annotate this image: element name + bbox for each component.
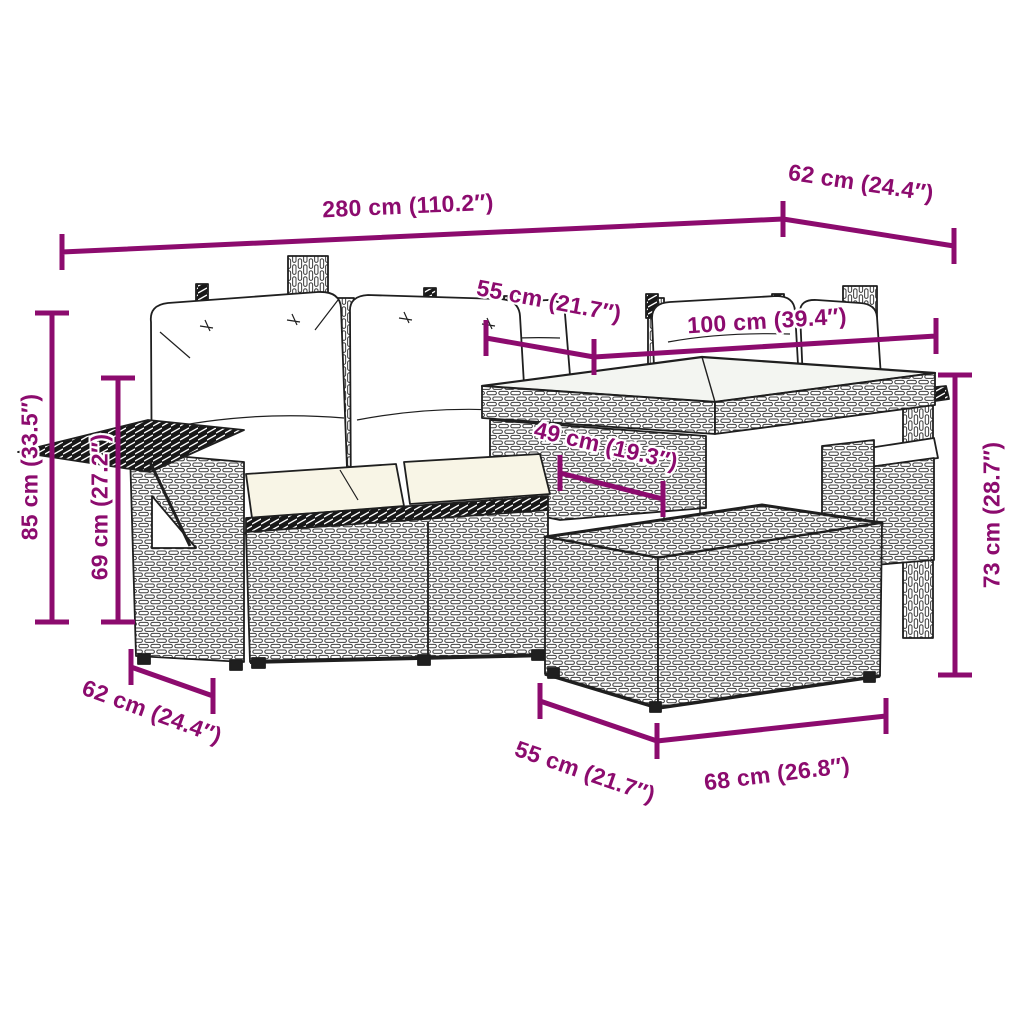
- dimension-label-right-table-height: 73 cm (28.7″): [979, 442, 1006, 589]
- dimension-label-left-arm-height: 69 cm (27.2″): [87, 434, 114, 581]
- ottoman: [545, 505, 882, 712]
- furniture-illustration: [0, 0, 1024, 1024]
- dimension-diagram: 280 cm (110.2″) 62 cm (24.4″) 55 cm (21.…: [0, 0, 1024, 1024]
- dimension-label-left-back-height: 85 cm (33.5″): [17, 394, 44, 541]
- sofa-base: [246, 496, 548, 668]
- dimension-line-right-table-height: [938, 375, 972, 675]
- dimension-line-top-right-depth: [783, 219, 954, 264]
